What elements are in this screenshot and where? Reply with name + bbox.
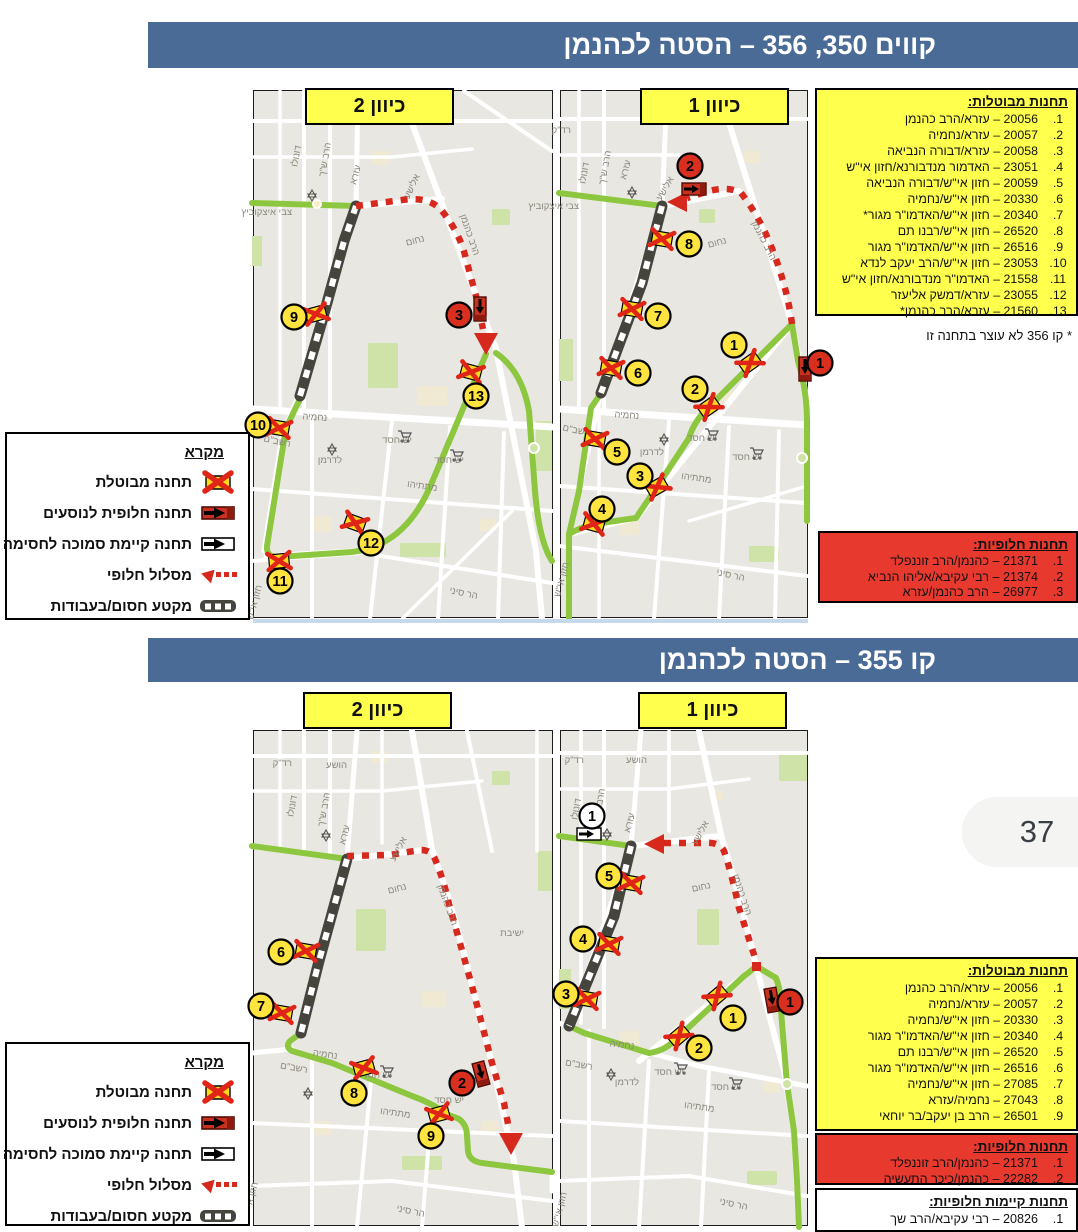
page: { "page_number": "37", "colors": { "head… <box>0 0 1078 1232</box>
existing-station-bus-icon <box>577 828 601 840</box>
cancelled-station-marker-3: 3 <box>554 982 579 1007</box>
svg-text:דונולו: דונולו <box>288 144 304 167</box>
station-list-item: 9.26516 – חזון אי"ש/האדמו"ר מגור <box>821 239 1068 255</box>
existing-station-marker-1: 1 <box>580 804 605 829</box>
station-list-item: 2.22282 – כהנמן/כיכר התעשיה <box>821 1172 1068 1188</box>
svg-text:נחמיה: נחמיה <box>302 411 327 424</box>
svg-text:7: 7 <box>257 999 265 1015</box>
legend-list: תחנה מבוטלת תחנה חלופית לנוסעים תחנה קיי… <box>13 1080 238 1228</box>
junction-dot <box>313 200 321 208</box>
direction2-text: כיוון 2 <box>354 95 406 118</box>
svg-text:נחום: נחום <box>691 880 712 895</box>
alternative-station-icon <box>198 1111 238 1135</box>
alternative-station-marker-2: 2 <box>450 1071 475 1096</box>
cancelled-station-marker-2: 2 <box>683 377 708 402</box>
rejoin-point <box>752 962 761 971</box>
cancelled-station-marker-6: 6 <box>269 940 294 965</box>
svg-text:עזרא: עזרא <box>622 811 638 833</box>
station-list-item: 4.23051 – האדמור מנדבורנא/חזון אי"ש <box>821 159 1068 175</box>
existing-station-list: 1.20826 – רבי עקיבא/הרב שך <box>821 1211 1068 1227</box>
existing-station-icon <box>198 1142 238 1166</box>
svg-text:2: 2 <box>691 382 699 398</box>
divider-strip <box>253 619 808 623</box>
station-list-item: 5.26520 – חזון אי"ש/רבנו תם <box>821 1044 1068 1060</box>
svg-text:4: 4 <box>598 502 606 518</box>
alternative-station-marker-1: 1 <box>778 990 803 1015</box>
cancelled-station-marker-1: 1 <box>721 1006 746 1031</box>
route-red-diversion <box>356 199 498 355</box>
legend-item-existing-station: תחנה קיימת סמוכה לחסימה <box>13 1142 238 1166</box>
cancelled-station-marker-3: 3 <box>628 464 653 489</box>
station-list-item: 7.27085 – חזון אי"ש/נחמיה <box>821 1076 1068 1092</box>
alternative-station-marker-2: 2 <box>678 154 703 179</box>
svg-text:הרב כהנמן: הרב כהנמן <box>435 883 460 927</box>
station-list-item: 12.23055 – עזרא/דמשק אליעזר <box>821 287 1068 303</box>
diversion-arrow <box>499 1133 523 1155</box>
svg-text:לדרמן: לדרמן <box>615 1076 639 1088</box>
svg-text:1: 1 <box>816 356 824 372</box>
svg-text:5: 5 <box>605 869 613 885</box>
cancelled-station-marker-11: 11 <box>268 569 293 594</box>
station-list-item: 8.27043 – נחמיה/עזרא <box>821 1092 1068 1108</box>
blocked-segment-icon <box>198 594 238 618</box>
station-list-item: 9.26501 – הרב בן יעקב/בר יוחאי <box>821 1108 1068 1124</box>
svg-text:1: 1 <box>786 995 794 1011</box>
section2-cancelled-stations-box: תחנות מבוטלות: 1.20056 – עזרא/הרב כהנמן … <box>815 957 1078 1131</box>
alternative-route-icon <box>198 563 238 587</box>
station-list-item: 13.21560 – עזרא/הרב כהנמן* <box>821 303 1068 319</box>
svg-text:8: 8 <box>350 1086 358 1102</box>
station-list-item: 1.21371 – כהנמן/הרב זוננפלד <box>821 1156 1068 1172</box>
cancelled-title: תחנות מבוטלות: <box>821 93 1068 111</box>
svg-text:נחמיה: נחמיה <box>609 1038 635 1052</box>
existing-station-icon <box>198 532 238 556</box>
section1-legend: מקרא תחנה מבוטלת תחנה חלופית לנוסעים תחנ… <box>5 432 250 620</box>
svg-text:נחום: נחום <box>405 233 426 249</box>
svg-text:הושע: הושע <box>326 760 347 771</box>
svg-text:עזרא: עזרא <box>618 158 634 180</box>
direction1-text: כיוון 1 <box>687 699 739 722</box>
section2-legend: מקרא תחנה מבוטלת תחנה חלופית לנוסעים תחנ… <box>5 1042 250 1226</box>
svg-text:ישיבת: ישיבת <box>500 928 524 939</box>
legend-item-alternative-station: תחנה חלופית לנוסעים <box>13 501 238 525</box>
parks <box>252 151 552 557</box>
alternative-station-list: 1.21371 – כהנמן/הרב זוננפלד 2.22282 – כה… <box>821 1156 1068 1187</box>
svg-text:עזרא: עזרא <box>348 163 364 185</box>
section2-alternative-stations-box: תחנות חלופיות: 1.21371 – כהנמן/הרב זוננפ… <box>815 1133 1078 1185</box>
svg-text:4: 4 <box>579 932 587 948</box>
cancelled-station-marker-12: 12 <box>359 531 384 556</box>
existing-title: תחנות קיימות חלופיות: <box>821 1193 1068 1211</box>
alternative-title: תחנות חלופיות: <box>821 1138 1068 1156</box>
legend-title: מקרא <box>13 444 224 462</box>
svg-text:9: 9 <box>290 310 298 326</box>
map-svg-t1: רד"ק דונולו הרב ש"ך עזרא אלישע נחום הרב … <box>559 91 807 619</box>
section2-direction1-label: כיוון 1 <box>638 692 787 729</box>
direction2-text: כיוון 2 <box>352 699 404 722</box>
cancelled-station-marker-4: 4 <box>590 497 615 522</box>
section1-direction1-label: כיוון 1 <box>640 88 789 125</box>
station-list-item: 11.21558 – האדמו"ר מנדבורנא/חזון אי"ש <box>821 271 1068 287</box>
cancelled-station-marker-9: 9 <box>282 305 307 330</box>
station-list-item: 2.20057 – עזרא/נחמיה <box>821 996 1068 1012</box>
svg-text:הושע: הושע <box>626 755 647 766</box>
svg-text:13: 13 <box>468 389 484 405</box>
roundabout <box>782 1079 792 1089</box>
section1-footnote: * קו 356 לא עוצר בתחנה זו <box>800 328 1072 343</box>
station-list-item: 4.20340 – חזון אי"ש/האדמו"ר מגור <box>821 1028 1068 1044</box>
svg-text:רשב"ם: רשב"ם <box>279 1060 308 1076</box>
station-list-item: 3.20058 – עזרא/דבורה הנביאה <box>821 143 1068 159</box>
map-lines350-356-direction1: רד"ק דונולו הרב ש"ך עזרא אלישע נחום הרב … <box>560 90 808 618</box>
cancelled-station-marker-7: 7 <box>249 994 274 1019</box>
alternative-route-icon <box>198 1173 238 1197</box>
legend-title: מקרא <box>13 1054 224 1072</box>
svg-text:2: 2 <box>686 159 694 175</box>
alt-station-bus-icon <box>474 297 486 321</box>
station-list-item: 1.20826 – רבי עקיבא/הרב שך <box>821 1211 1068 1227</box>
section2-title: קו 355 – הסטה לכהנמן <box>659 645 936 676</box>
svg-text:צבי איצקוביץ: צבי איצקוביץ <box>241 207 292 218</box>
station-list-item: 1.20056 – עזרא/הרב כהנמן <box>821 980 1068 996</box>
svg-text:הר סיני: הר סיני <box>718 1196 748 1213</box>
station-list-item: 1.21371 – כהנמן/הרב זוננפלד <box>824 554 1068 570</box>
alternative-station-icon <box>198 501 238 525</box>
legend-item-cancelled-station: תחנה מבוטלת <box>13 470 238 494</box>
cancelled-station-marker-5: 5 <box>597 864 622 889</box>
svg-text:9: 9 <box>427 1129 435 1145</box>
svg-text:רד"ק: רד"ק <box>552 125 571 136</box>
blocked-segment-icon <box>198 1204 238 1228</box>
svg-text:2: 2 <box>458 1076 466 1092</box>
legend-item-blocked-segment: מקטע חסום/בעבודות <box>13 1204 238 1228</box>
cancelled-station-list: 1.20056 – עזרא/הרב כהנמן 2.20057 – עזרא/… <box>821 111 1068 319</box>
cancelled-station-icon <box>198 470 238 494</box>
street-network <box>252 91 552 619</box>
legend-item-alternative-station: תחנה חלופית לנוסעים <box>13 1111 238 1135</box>
station-list-item: 3.20330 – חזון אי"ש/נחמיה <box>821 1012 1068 1028</box>
station-list-item: 1.20056 – עזרא/הרב כהנמן <box>821 111 1068 127</box>
cancelled-station-marker-5: 5 <box>605 440 630 465</box>
map-line355-direction1: רד"ק הושע דונולו הרב ש"ך עזרא אלישע נחום… <box>560 730 808 1226</box>
station-list-item: 10.23053 – חזון אי"ש/הרב יעקב לנדא <box>821 255 1068 271</box>
svg-text:מתתיהו: מתתיהו <box>680 471 712 486</box>
svg-text:נחמיה: נחמיה <box>614 409 639 422</box>
svg-text:1: 1 <box>730 338 738 354</box>
cancelled-station-list: 1.20056 – עזרא/הרב כהנמן 2.20057 – עזרא/… <box>821 980 1068 1124</box>
map-line355-direction2: הושע רד"ק הרב ש"ך דונולו עזרא אלישע נחום… <box>253 730 553 1226</box>
alternative-title: תחנות חלופיות: <box>824 536 1068 554</box>
svg-text:חזון אי"ש: חזון אי"ש <box>550 1191 570 1228</box>
svg-text:8: 8 <box>685 237 693 253</box>
roundabout <box>797 453 807 463</box>
svg-text:3: 3 <box>455 308 463 324</box>
svg-text:נחום: נחום <box>387 881 408 897</box>
section2-existing-stations-box: תחנות קיימות חלופיות: 1.20826 – רבי עקיב… <box>815 1188 1078 1232</box>
legend-item-alternative-route: מסלול חלופי <box>13 1173 238 1197</box>
cancelled-station-marker-2: 2 <box>687 1036 712 1061</box>
legend-list: תחנה מבוטלת תחנה חלופית לנוסעים תחנה קיי… <box>13 470 238 618</box>
cancelled-station-icon <box>198 1080 238 1104</box>
svg-text:הר סיני: הר סיני <box>395 1203 425 1220</box>
svg-text:7: 7 <box>654 309 662 325</box>
map-svg-t2: הרב ש"ך דונולו עזרא אלישע נחום הרב כהנמן… <box>252 91 552 619</box>
svg-text:1: 1 <box>729 1011 737 1027</box>
station-list-item: 2.21374 – רבי עקיבא/אליהו הנביא <box>824 570 1068 586</box>
svg-text:אלישע: אלישע <box>653 174 676 202</box>
legend-item-cancelled-station: תחנה מבוטלת <box>13 1080 238 1104</box>
svg-text:מתתיהו: מתתיהו <box>683 1100 715 1115</box>
page-number-badge: 37 <box>962 797 1078 867</box>
svg-text:רד"ק: רד"ק <box>565 755 584 766</box>
diversion-arrow <box>644 834 664 854</box>
svg-text:6: 6 <box>277 945 285 961</box>
alternative-station-list: 1.21371 – כהנמן/הרב זוננפלד 2.21374 – רב… <box>824 554 1068 601</box>
svg-text:צבי איצקוביץ: צבי איצקוביץ <box>528 201 579 212</box>
svg-text:12: 12 <box>363 536 379 552</box>
station-list-item: 3.26977 – הרב כהנמן/עזרא <box>824 585 1068 601</box>
station-list-item: 2.20057 – עזרא/נחמיה <box>821 127 1068 143</box>
section1-direction2-label: כיוון 2 <box>305 88 454 125</box>
footnote-text: * קו 356 לא עוצר בתחנה זו <box>926 328 1072 343</box>
legend-item-blocked-segment: מקטע חסום/בעבודות <box>13 594 238 618</box>
cancelled-station-marker-13: 13 <box>464 384 489 409</box>
svg-text:מתתיהו: מתתיהו <box>379 1106 411 1121</box>
svg-text:רד"ק: רד"ק <box>273 758 292 769</box>
alternative-station-marker-1: 1 <box>808 351 833 376</box>
legend-item-alternative-route: מסלול חלופי <box>13 563 238 587</box>
svg-text:2: 2 <box>695 1041 703 1057</box>
svg-text:6: 6 <box>634 366 642 382</box>
svg-text:אלישע: אלישע <box>689 819 712 847</box>
station-list-item: 5.20059 – חזון אי"ש/דבורה הנביאה <box>821 175 1068 191</box>
section1-header: קווים 350, 356 – הסטה לכהנמן <box>148 22 1078 68</box>
cancelled-station-marker-1: 1 <box>722 333 747 358</box>
alternative-station-marker-3: 3 <box>447 303 472 328</box>
section1-cancelled-stations-box: תחנות מבוטלות: 1.20056 – עזרא/הרב כהנמן … <box>815 88 1078 316</box>
section1-title: קווים 350, 356 – הסטה לכהנמן <box>563 30 936 61</box>
map-lines350-356-direction2: הרב ש"ך דונולו עזרא אלישע נחום הרב כהנמן… <box>253 90 553 618</box>
svg-text:5: 5 <box>613 445 621 461</box>
station-list-item: 7.20340 – חזון אי"ש/האדמו"ר מגור* <box>821 207 1068 223</box>
cancelled-station-marker-8: 8 <box>677 232 702 257</box>
svg-text:לדרמן: לדרמן <box>640 446 664 458</box>
page-number-text: 37 <box>1020 814 1054 850</box>
svg-text:3: 3 <box>636 469 644 485</box>
cancelled-title: תחנות מבוטלות: <box>821 962 1068 980</box>
cancelled-station-marker-6: 6 <box>626 361 651 386</box>
section2-direction2-label: כיוון 2 <box>303 692 452 729</box>
svg-text:1: 1 <box>588 809 596 825</box>
svg-text:נחום: נחום <box>707 235 728 251</box>
section2-header: קו 355 – הסטה לכהנמן <box>148 638 1078 682</box>
roundabout <box>529 443 539 453</box>
cancelled-station-marker-7: 7 <box>646 304 671 329</box>
legend-item-existing-station: תחנה קיימת סמוכה לחסימה <box>13 532 238 556</box>
svg-text:דונולו: דונולו <box>284 794 300 817</box>
station-list-item: 8.26520 – חזון אי"ש/רבנו תם <box>821 223 1068 239</box>
station-list-item: 6.20330 – חזון אי"ש/נחמיה <box>821 191 1068 207</box>
svg-text:11: 11 <box>272 574 287 590</box>
direction1-text: כיוון 1 <box>689 95 741 118</box>
cancelled-station-marker-8: 8 <box>342 1081 367 1106</box>
station-list-item: 6.26516 – חזון אי"ש/האדמו"ר מגור <box>821 1060 1068 1076</box>
map-svg-b1: רד"ק הושע דונולו הרב ש"ך עזרא אלישע נחום… <box>559 731 807 1227</box>
cancelled-station-marker-4: 4 <box>571 927 596 952</box>
section1-alternative-stations-box: תחנות חלופיות: 1.21371 – כהנמן/הרב זוננפ… <box>818 531 1078 603</box>
cancelled-station-marker-9: 9 <box>419 1124 444 1149</box>
svg-text:לדרמן: לדרמן <box>318 454 342 466</box>
svg-text:3: 3 <box>562 987 570 1003</box>
svg-text:10: 10 <box>250 418 266 434</box>
map-svg-b2: הושע רד"ק הרב ש"ך דונולו עזרא אלישע נחום… <box>252 731 552 1227</box>
svg-text:הר סיני: הר סיני <box>448 585 478 602</box>
